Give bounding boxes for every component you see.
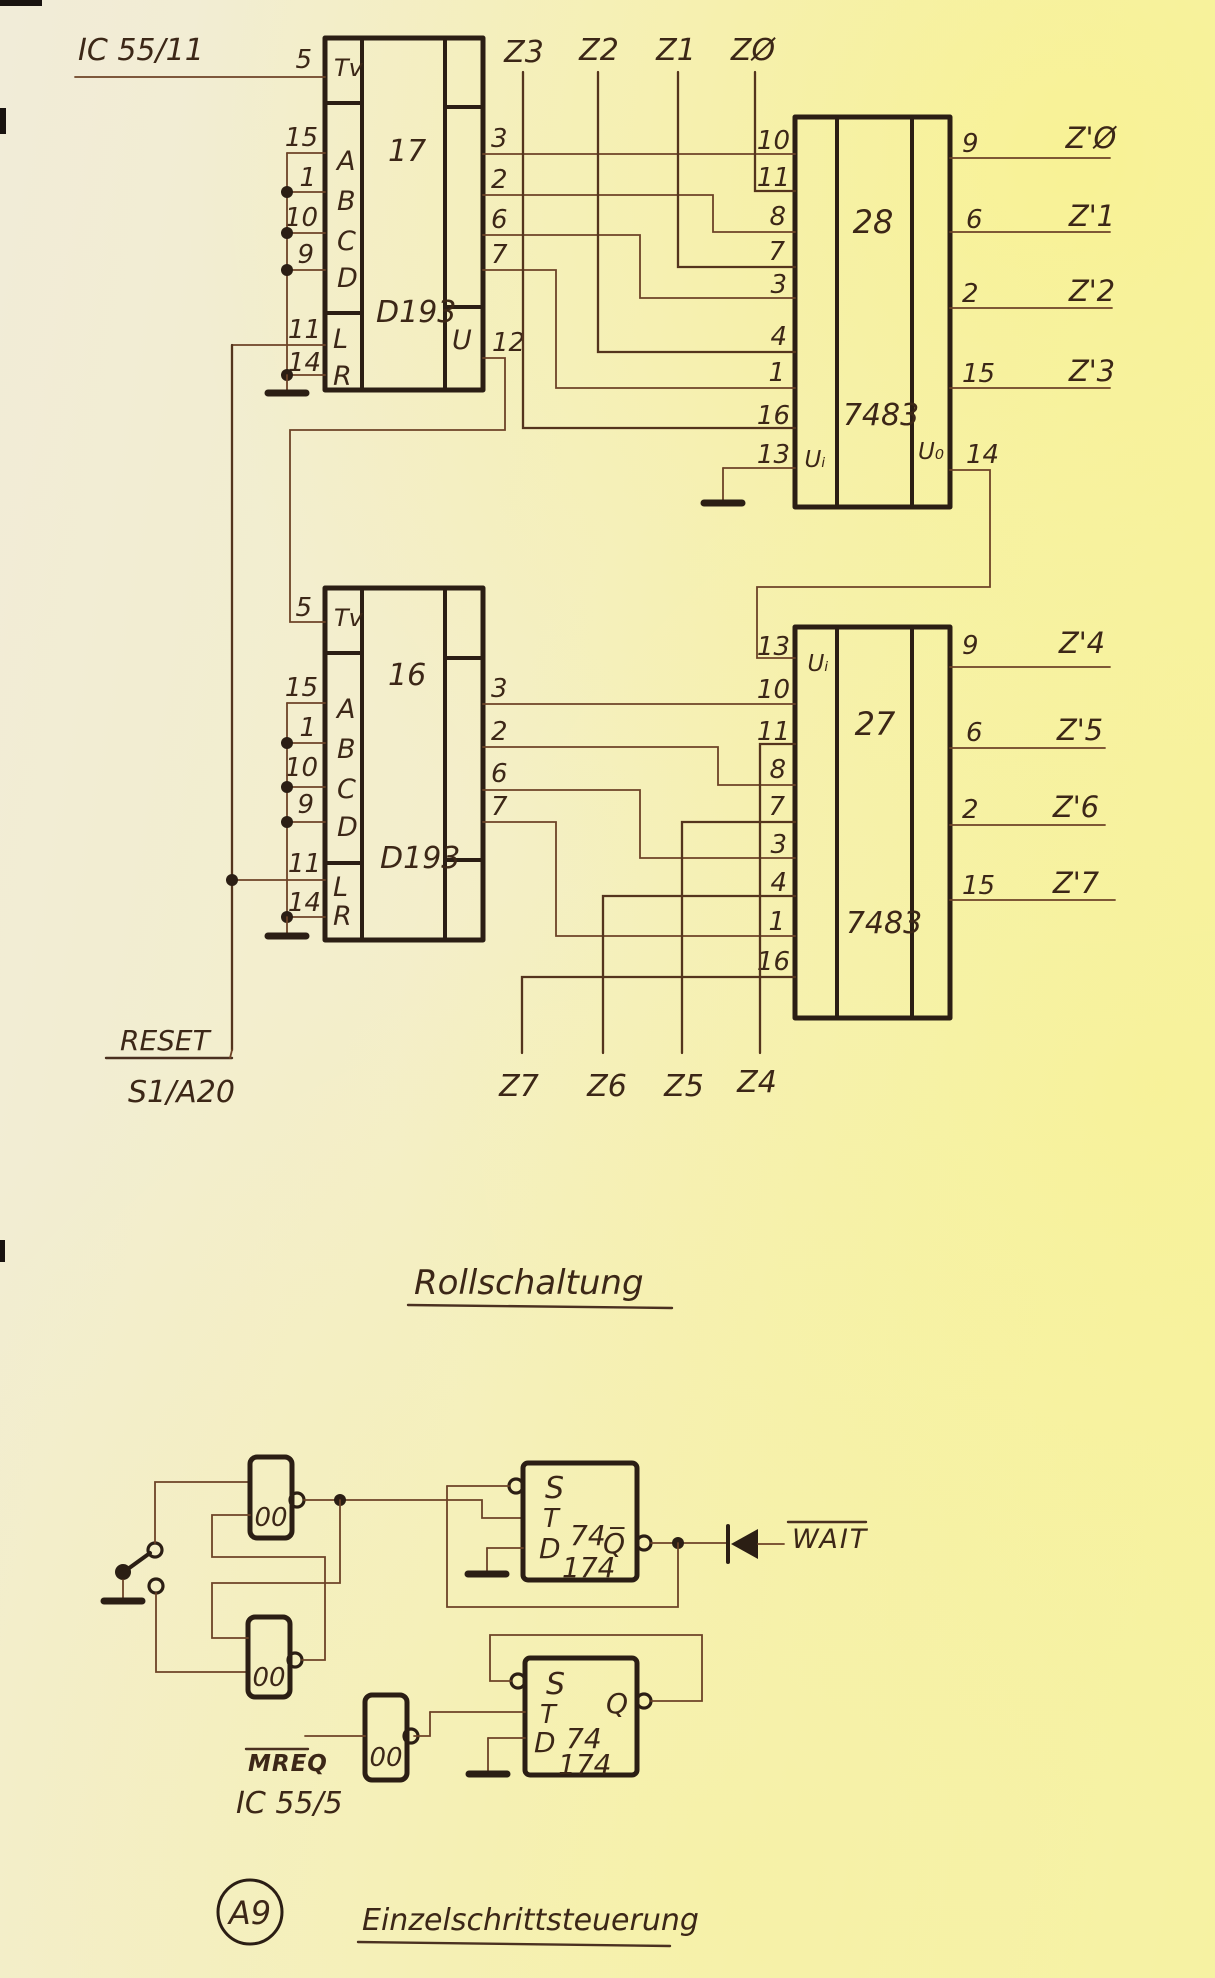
junction-dot	[281, 781, 293, 793]
bus-label-bottom: Z5	[663, 1069, 704, 1104]
ic16-cell-label: Tv	[334, 604, 364, 632]
ic17-pin-label: 6	[491, 205, 508, 235]
junction-dot	[281, 816, 293, 828]
wire-switch-reset	[156, 1593, 248, 1672]
bus-label-out: Z'1	[1068, 199, 1115, 233]
ic28-designator: 28	[853, 203, 894, 241]
ic17-designator: 17	[388, 134, 426, 169]
ic16-pin-label: 10	[285, 753, 318, 783]
ic28-carry-out-label: U₀	[918, 439, 944, 465]
ic27-carry-in-label: Uᵢ	[808, 651, 829, 677]
ic28-pin-label: 14	[966, 440, 999, 470]
ic28-pin-label: 16	[757, 401, 790, 431]
bus-label-top: Z3	[503, 35, 544, 70]
ic27-pin-label: 16	[757, 947, 790, 977]
junction-dot	[226, 874, 238, 886]
ic28-pin-label: 6	[966, 205, 983, 235]
ic16-pin-label: 5	[295, 593, 312, 623]
reset-label: RESET	[120, 1024, 212, 1057]
ic28-pin-label: 1	[768, 358, 785, 388]
ic16-cell-label: R	[333, 901, 352, 932]
ic17-pin-label: 3	[491, 124, 508, 154]
bus-label-out: Z'Ø	[1065, 121, 1118, 155]
ic27-pin-label: 1	[768, 907, 785, 937]
ic16-pin-label: 6	[491, 759, 508, 789]
ic28-carry-in-label: Uᵢ	[805, 447, 826, 473]
ic16-cell-label: D	[337, 812, 358, 843]
bus-label-out: Z'6	[1052, 790, 1099, 824]
ic27-pin-label: 11	[757, 717, 790, 747]
ic27-box	[795, 627, 950, 1018]
ic27-pin-label: 6	[966, 718, 983, 748]
ic16-pin-label: 15	[285, 673, 318, 703]
ic17-part-number: D193	[376, 295, 456, 330]
wire-z7	[522, 977, 795, 1053]
ic17-cell-label: L	[333, 324, 348, 355]
bus-label-out: Z'4	[1058, 626, 1105, 660]
wire-17q1-28a2	[483, 195, 795, 232]
nand1-type-label: 00	[254, 1503, 287, 1533]
ic17-pin-label: 9	[297, 240, 314, 270]
page-badge: A9	[227, 1894, 271, 1932]
ic16-designator: 16	[388, 658, 426, 693]
ic16-pin-label: 11	[288, 849, 321, 879]
bus-label-out: Z'5	[1056, 713, 1103, 747]
ic16-pin-label: 3	[491, 674, 508, 704]
ic17-pin-label: 15	[285, 123, 318, 153]
junction-dot	[281, 186, 293, 198]
ff1-output-label: Q̅	[603, 1526, 625, 1560]
ic16-cell-label: L	[333, 872, 348, 903]
ic16-pin-label: 7	[491, 792, 508, 822]
ic27-pin-label: 4	[770, 868, 787, 898]
reset-source-label: S1/A20	[128, 1075, 235, 1110]
ic27-pin-label: 10	[757, 675, 790, 705]
schematic-canvas: 51511091114TvABCDLR32671217D193515110911…	[0, 0, 1215, 1978]
ic16-pin-label: 1	[299, 713, 316, 743]
junction-dot	[281, 227, 293, 239]
section-title-einzel: Einzelschrittsteuerung	[362, 1903, 699, 1938]
ff2-s-label: S	[546, 1667, 565, 1702]
wire-16q2-27a3	[483, 790, 795, 858]
bus-label-out: Z'7	[1052, 866, 1100, 900]
wire-16q1-27a2	[483, 747, 795, 785]
ic17-cell-label: B	[337, 186, 356, 217]
ic28-pin-label: 10	[757, 126, 790, 156]
ff1-s-label: S	[545, 1471, 564, 1506]
ic17-pin-label: 14	[288, 348, 321, 378]
ic17-cell-label: Tv	[334, 54, 364, 82]
section-title-roll: Rollschaltung	[414, 1263, 644, 1303]
bus-label-top: ZØ	[730, 33, 777, 68]
wire-z2	[598, 72, 795, 352]
ic28-pin-label: 4	[770, 322, 787, 352]
roll-underline	[408, 1305, 672, 1308]
ic27-pin-label: 3	[770, 830, 787, 860]
ic17-pin-label: 11	[288, 315, 321, 345]
ic17-cell-label: D	[337, 263, 358, 294]
einzel-underline	[358, 1942, 670, 1946]
junction-dot	[281, 264, 293, 276]
ic17-carry-label: U	[452, 325, 472, 356]
wire-17q3-28a4	[483, 270, 795, 388]
wire-ff2-feedback	[490, 1635, 702, 1701]
ff1-t-label: T	[543, 1504, 561, 1534]
junction-dot	[281, 737, 293, 749]
ic17-cell-label: A	[335, 146, 355, 177]
ff2-part-label: 174	[558, 1748, 611, 1781]
nand2-type-label: 00	[252, 1663, 285, 1693]
wire-carry-28-27	[757, 470, 990, 658]
ic28-pin-label: 2	[962, 279, 979, 309]
ic17-pin-label: 5	[295, 45, 312, 75]
nand3-type-label: 00	[369, 1743, 402, 1773]
ic28-pin-label: 11	[757, 163, 790, 193]
bus-label-bottom: Z6	[586, 1069, 627, 1104]
mreq-label: MREQ	[248, 1751, 328, 1777]
ic17-pin-label: 12	[492, 328, 525, 358]
switch-contact-icon	[149, 1579, 163, 1593]
ic16-cell-label: B	[337, 734, 356, 765]
wire-switch-set	[155, 1482, 250, 1543]
ic27-pin-label: 8	[769, 755, 786, 785]
wire-17u-16clk	[290, 358, 505, 622]
ic28-part-number: 7483	[843, 398, 919, 433]
bus-label-top: Z1	[655, 33, 696, 68]
scanned-schematic-page: 51511091114TvABCDLR32671217D193515110911…	[0, 0, 1215, 1978]
ic16-pin-label: 2	[491, 717, 508, 747]
bus-label-bottom: Z4	[736, 1065, 777, 1100]
ff2-d-label: D	[534, 1726, 556, 1759]
ic27-pin-label: 2	[962, 795, 979, 825]
ic17-cell-label: C	[337, 226, 356, 257]
ic-ref-label: IC 55/11	[78, 33, 204, 68]
ff1-d-label: D	[539, 1532, 561, 1565]
ic16-cell-label: A	[335, 694, 355, 725]
ic17-pin-label: 2	[491, 165, 508, 195]
wire-z4	[760, 744, 795, 1053]
ff2-output-label: Q	[606, 1687, 628, 1720]
ic27-pin-label: 9	[962, 631, 979, 661]
bus-label-bottom: Z7	[498, 1069, 539, 1104]
bus-label-top: Z2	[578, 33, 619, 68]
ic16-pin-label: 9	[297, 790, 314, 820]
ic28-pin-label: 15	[962, 359, 995, 389]
ic27-pin-label: 7	[768, 792, 785, 822]
ic17-cell-label: R	[333, 361, 352, 392]
ic16-pin-label: 14	[288, 888, 321, 918]
ff1-part-label: 74	[570, 1519, 606, 1552]
ic27-pin-label: 15	[962, 871, 995, 901]
ic28-pin-label: 8	[769, 202, 786, 232]
ic27-part-number: 7483	[846, 906, 922, 941]
diode-triangle-icon	[731, 1529, 758, 1559]
wait-label: WAIT	[792, 1524, 869, 1555]
ic28-pin-label: 9	[962, 129, 979, 159]
ic28-pin-label: 3	[770, 270, 787, 300]
bus-label-out: Z'2	[1068, 274, 1115, 308]
ic28-pin-label: 13	[757, 440, 790, 470]
switch-lever-icon	[121, 1553, 150, 1574]
ic28-pin-label: 7	[768, 237, 785, 267]
ic17-pin-label: 1	[299, 163, 316, 193]
ic27-designator: 27	[855, 705, 896, 743]
bus-label-out: Z'3	[1068, 354, 1115, 388]
ic16-part-number: D193	[380, 841, 460, 876]
mreq-source-label: IC 55/5	[236, 1786, 343, 1821]
wire-16q3-27a4	[483, 822, 795, 936]
ic16-cell-label: C	[337, 774, 356, 805]
ic17-pin-label: 7	[491, 240, 508, 270]
